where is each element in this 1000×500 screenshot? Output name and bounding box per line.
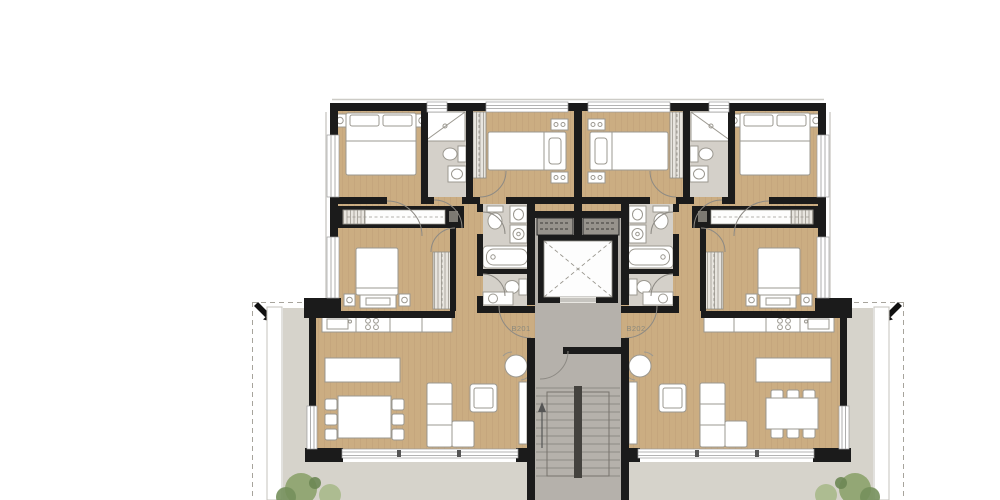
sink xyxy=(510,206,527,223)
sink xyxy=(448,166,466,182)
wardrobe xyxy=(433,252,451,309)
washing-machine xyxy=(510,225,527,243)
service-shaft xyxy=(583,218,619,235)
double-bed xyxy=(346,113,416,175)
nightstand xyxy=(551,119,568,130)
single-bed xyxy=(488,132,566,170)
dining-table xyxy=(325,396,404,440)
armchair xyxy=(470,384,497,412)
planter-strip xyxy=(267,307,282,500)
sliding-glass-door xyxy=(342,449,518,458)
tv-sideboard xyxy=(519,382,527,444)
stair-divider xyxy=(574,386,582,478)
wardrobe xyxy=(472,112,486,178)
service-shaft xyxy=(537,218,573,235)
hall-wardrobe xyxy=(338,206,464,228)
elevator xyxy=(538,235,618,303)
party-wall xyxy=(574,103,582,218)
bed xyxy=(356,248,398,308)
unit-label-b202: B202 xyxy=(626,324,645,333)
sink xyxy=(483,292,513,305)
toilet xyxy=(487,206,503,229)
unit-label-b201: B201 xyxy=(511,324,530,333)
dining-table xyxy=(766,390,818,438)
bathtub xyxy=(483,246,531,268)
nightstand xyxy=(344,294,355,306)
kitchen-island xyxy=(325,358,400,382)
floor-plan-page: B201 B202 xyxy=(0,0,1000,500)
floor-plan: B201 B202 xyxy=(0,0,1000,500)
kitchen-counter xyxy=(322,316,452,332)
shower xyxy=(425,112,465,141)
nightstand xyxy=(551,172,568,183)
nightstand xyxy=(399,294,410,306)
